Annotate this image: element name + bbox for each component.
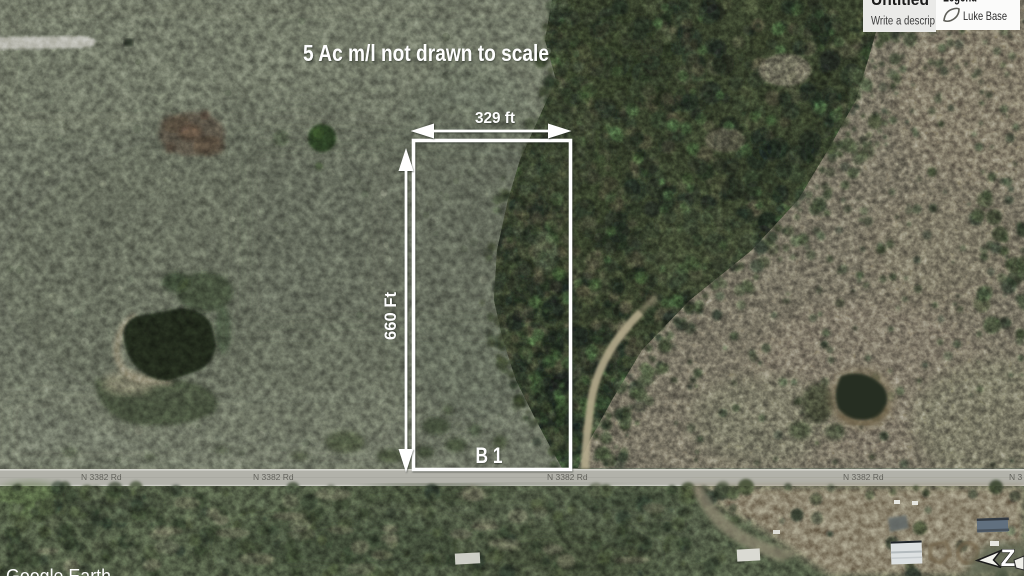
svg-text:N 3382 Rd: N 3382 Rd [81, 472, 122, 482]
svg-text:329 ft: 329 ft [475, 110, 515, 127]
svg-text:N 3382 Rd: N 3382 Rd [253, 472, 294, 482]
svg-text:N 3: N 3 [1009, 472, 1023, 482]
svg-text:Legend: Legend [943, 0, 977, 5]
svg-text:Write a descrip: Write a descrip [871, 16, 935, 28]
svg-text:660 Ft: 660 Ft [381, 292, 400, 340]
svg-text:Google Earth: Google Earth [6, 566, 111, 576]
svg-text:5 Ac m/l not drawn to scale: 5 Ac m/l not drawn to scale [303, 40, 549, 66]
svg-text:Untitled: Untitled [871, 0, 929, 9]
svg-text:Luke Base: Luke Base [963, 9, 1007, 23]
svg-text:N 3382 Rd: N 3382 Rd [843, 472, 884, 482]
svg-text:N 3382 Rd: N 3382 Rd [547, 472, 588, 482]
svg-text:B 1: B 1 [476, 443, 503, 468]
svg-text:Z: Z [1001, 545, 1016, 572]
